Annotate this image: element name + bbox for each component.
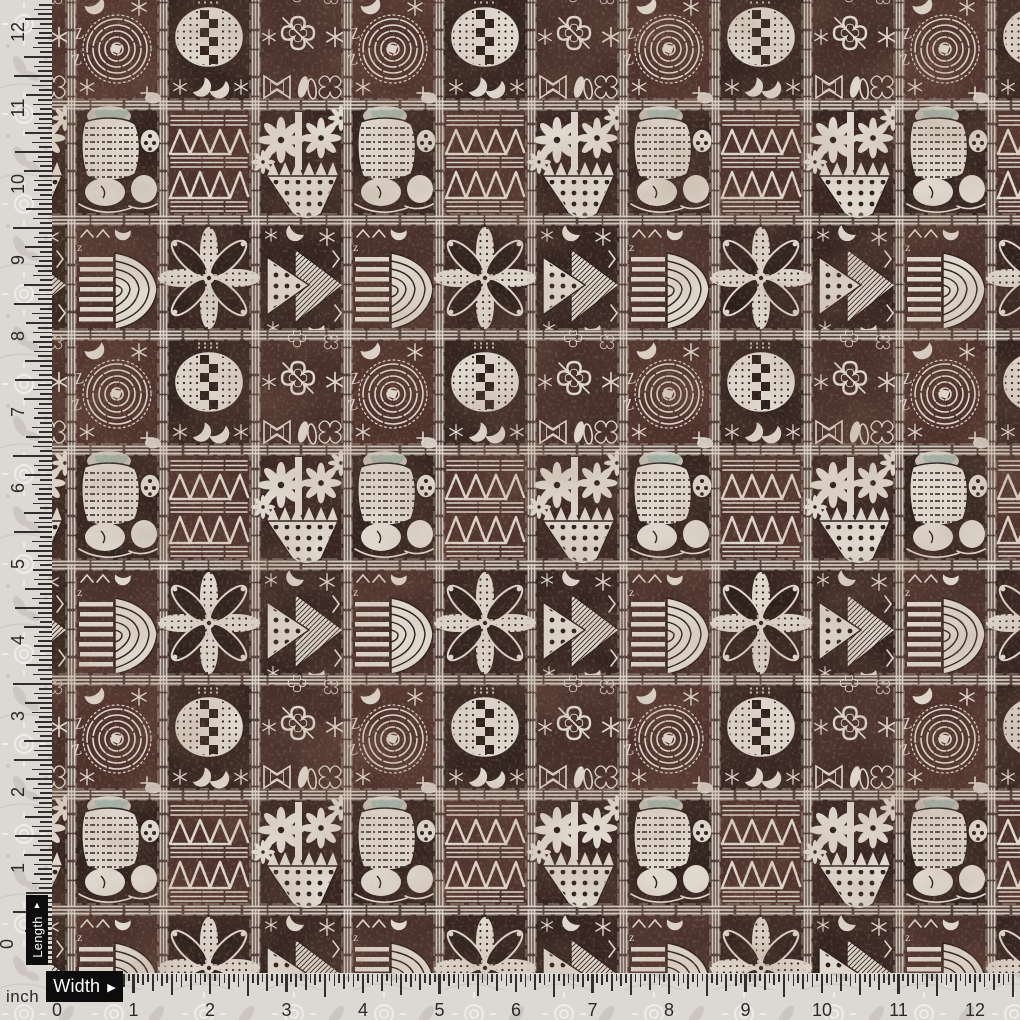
ruler-tick bbox=[372, 974, 374, 985]
ruler-tick bbox=[123, 974, 125, 987]
ruler-number: 12 bbox=[963, 1001, 987, 1019]
ruler-tick bbox=[40, 137, 52, 139]
ruler-tick bbox=[391, 974, 393, 986]
ruler-tick bbox=[34, 9, 52, 11]
ruler-tick bbox=[15, 835, 52, 837]
ruler-tick bbox=[716, 974, 718, 985]
ruler-tick bbox=[568, 974, 570, 983]
ruler-tick bbox=[34, 864, 52, 866]
ruler-tick bbox=[773, 974, 775, 985]
ruler-tick bbox=[711, 974, 713, 983]
ruler-tick bbox=[38, 270, 52, 272]
ruler-tick bbox=[38, 526, 52, 528]
ruler-tick bbox=[931, 974, 933, 981]
ruler-tick bbox=[40, 393, 52, 395]
ruler-tick bbox=[434, 974, 436, 982]
ruler-tick bbox=[874, 974, 876, 981]
ruler-tick bbox=[39, 631, 52, 633]
ruler-tick bbox=[34, 189, 52, 191]
ruler-tick bbox=[161, 974, 163, 986]
ruler-tick bbox=[38, 498, 52, 500]
ruler-number: 9 bbox=[6, 248, 30, 272]
ruler-tick bbox=[553, 974, 555, 997]
ruler-tick bbox=[310, 974, 312, 983]
ruler-tick bbox=[34, 180, 52, 182]
ruler-number: 6 bbox=[6, 476, 30, 500]
ruler-tick bbox=[965, 974, 967, 986]
ruler-tick bbox=[482, 974, 484, 983]
ruler-tick bbox=[39, 232, 52, 234]
ruler-tick bbox=[32, 655, 52, 657]
ruler-tick bbox=[26, 892, 52, 894]
ruler-tick bbox=[137, 974, 139, 983]
ruler-tick bbox=[563, 974, 565, 986]
ruler-tick bbox=[38, 42, 52, 44]
ruler-tick bbox=[247, 974, 249, 996]
ruler-tick bbox=[448, 974, 450, 986]
ruler-tick bbox=[32, 142, 52, 144]
ruler-number: 1 bbox=[6, 856, 30, 880]
ruler-tick bbox=[807, 974, 809, 982]
ruler-tick bbox=[39, 716, 52, 718]
ruler-number: 10 bbox=[6, 172, 30, 196]
ruler-tick bbox=[467, 974, 469, 987]
ruler-tick bbox=[706, 974, 708, 996]
ruler-tick bbox=[14, 303, 52, 305]
ruler-tick bbox=[33, 341, 52, 343]
ruler-tick bbox=[185, 974, 187, 981]
ruler-tick bbox=[32, 427, 52, 429]
ruler-tick bbox=[34, 693, 52, 695]
ruler-tick bbox=[238, 974, 240, 987]
ruler-number: 1 bbox=[122, 1001, 146, 1019]
ruler-tick bbox=[883, 974, 885, 983]
ruler-number: 2 bbox=[198, 1001, 222, 1019]
ruler-tick bbox=[620, 974, 622, 986]
ruler-number: 4 bbox=[351, 1001, 375, 1019]
ruler-tick bbox=[39, 745, 52, 747]
ruler-tick bbox=[38, 441, 52, 443]
ruler-tick bbox=[157, 974, 159, 981]
ruler-tick bbox=[34, 237, 52, 239]
ruler-tick bbox=[587, 974, 589, 981]
ruler-tick bbox=[40, 251, 52, 253]
ruler-tick bbox=[38, 412, 52, 414]
ruler-number: 9 bbox=[734, 1001, 758, 1019]
ruler-tick bbox=[969, 974, 971, 983]
ruler-tick bbox=[591, 974, 593, 993]
ruler-tick bbox=[40, 422, 52, 424]
ruler-tick bbox=[506, 974, 508, 986]
ruler-tick bbox=[15, 607, 52, 609]
ruler-tick bbox=[955, 974, 957, 991]
ruler-tick bbox=[40, 194, 52, 196]
ruler-tick bbox=[39, 4, 52, 6]
ruler-tick bbox=[802, 974, 804, 989]
ruler-tick bbox=[34, 636, 52, 638]
ruler-tick bbox=[649, 974, 651, 990]
ruler-tick bbox=[840, 974, 842, 991]
ruler-tick bbox=[39, 317, 52, 319]
ruler-tick bbox=[15, 151, 52, 153]
ruler-tick bbox=[34, 294, 52, 296]
ruler-tick bbox=[683, 974, 685, 983]
ruler-tick bbox=[266, 974, 268, 991]
ruler-tick bbox=[25, 816, 52, 818]
ruler-tick bbox=[888, 974, 890, 985]
ruler-tick bbox=[147, 974, 149, 982]
ruler-tick bbox=[39, 688, 52, 690]
ruler-tick bbox=[596, 974, 598, 983]
ruler-tick bbox=[40, 650, 52, 652]
ruler-tick bbox=[400, 974, 402, 995]
ruler-tick bbox=[549, 974, 551, 982]
ruler-tick bbox=[34, 465, 52, 467]
ruler-tick bbox=[38, 868, 52, 870]
ruler-tick bbox=[233, 974, 235, 982]
ruler-tick bbox=[644, 974, 646, 981]
width-label-text: Width bbox=[53, 976, 100, 997]
ruler-tick bbox=[26, 664, 52, 666]
ruler-tick bbox=[314, 974, 316, 985]
ruler-tick bbox=[32, 313, 52, 315]
ruler-number: 3 bbox=[275, 1001, 299, 1019]
ruler-tick bbox=[190, 974, 192, 990]
ruler-tick bbox=[39, 260, 52, 262]
ruler-number: 11 bbox=[6, 96, 30, 120]
ruler-tick bbox=[687, 974, 689, 989]
ruler-tick bbox=[544, 974, 546, 985]
ruler-number: 8 bbox=[657, 1001, 681, 1019]
ruler-tick bbox=[40, 792, 52, 794]
ruler-tick bbox=[941, 974, 943, 983]
fabric-listing-image: Z Z bbox=[0, 0, 1020, 1020]
ruler-tick bbox=[1003, 974, 1005, 985]
ruler-tick bbox=[616, 974, 618, 981]
ruler-tick bbox=[34, 123, 52, 125]
ruler-tick bbox=[525, 974, 527, 987]
ruler-tick bbox=[24, 284, 52, 286]
ruler-tick bbox=[907, 974, 909, 986]
ruler-tick bbox=[520, 974, 522, 982]
ruler-tick bbox=[181, 974, 183, 987]
ruler-tick bbox=[405, 974, 407, 982]
ruler-tick bbox=[38, 583, 52, 585]
ruler-tick bbox=[348, 974, 350, 982]
ruler-tick bbox=[396, 974, 398, 983]
ruler-tick bbox=[35, 493, 52, 495]
ruler-tick bbox=[640, 974, 642, 987]
length-label: ▲ Length bbox=[26, 895, 48, 965]
arrow-up-icon: ▲ bbox=[33, 900, 42, 910]
ruler-tick bbox=[40, 308, 52, 310]
ruler-tick bbox=[989, 974, 991, 981]
ruler-tick bbox=[39, 460, 52, 462]
ruler-tick bbox=[257, 974, 259, 985]
ruler-tick bbox=[39, 574, 52, 576]
ruler-tick bbox=[530, 974, 532, 981]
ruler-tick bbox=[34, 522, 52, 524]
ruler-tick bbox=[128, 974, 130, 981]
ruler-tick bbox=[34, 750, 52, 752]
ruler-tick bbox=[39, 431, 52, 433]
ruler-tick bbox=[38, 384, 52, 386]
ruler-tick bbox=[386, 974, 388, 981]
ruler-tick bbox=[33, 218, 52, 220]
ruler-tick bbox=[39, 61, 52, 63]
ruler-tick bbox=[826, 974, 828, 983]
ruler-tick bbox=[40, 678, 52, 680]
ruler-tick bbox=[40, 536, 52, 538]
ruler-tick bbox=[38, 213, 52, 215]
ruler-tick bbox=[35, 721, 52, 723]
ruler-tick bbox=[487, 974, 489, 985]
ruler-tick bbox=[285, 974, 287, 992]
ruler-tick bbox=[816, 974, 818, 981]
ruler-tick bbox=[39, 773, 52, 775]
ruler-tick bbox=[290, 974, 292, 982]
ruler-tick bbox=[40, 365, 52, 367]
ruler-tick bbox=[654, 974, 656, 983]
ruler-tick bbox=[32, 370, 52, 372]
ruler-tick bbox=[24, 740, 52, 742]
ruler-tick bbox=[334, 974, 336, 986]
ruler-tick bbox=[14, 531, 52, 533]
ruler-tick bbox=[998, 974, 1000, 983]
ruler-tick bbox=[859, 974, 861, 995]
ruler-tick bbox=[40, 878, 52, 880]
ruler-number: 5 bbox=[428, 1001, 452, 1019]
ruler-tick bbox=[13, 455, 52, 457]
ruler-tick bbox=[38, 13, 52, 15]
ruler-tick bbox=[33, 560, 52, 562]
ruler-tick bbox=[39, 374, 52, 376]
ruler-tick bbox=[39, 346, 52, 348]
ruler-tick bbox=[893, 974, 895, 982]
inch-unit-label: inch bbox=[6, 987, 39, 1007]
ruler-tick bbox=[912, 974, 914, 983]
ruler-number: 6 bbox=[504, 1001, 528, 1019]
ruler-tick bbox=[33, 731, 52, 733]
ruler-tick bbox=[25, 360, 52, 362]
ruler-tick bbox=[38, 70, 52, 72]
ruler-tick bbox=[38, 640, 52, 642]
ruler-number: 3 bbox=[6, 704, 30, 728]
ruler-tick bbox=[324, 974, 326, 997]
ruler-tick bbox=[32, 28, 52, 30]
ruler-tick bbox=[281, 974, 283, 983]
ruler-tick bbox=[35, 265, 52, 267]
ruler-tick bbox=[510, 974, 512, 983]
ruler-tick bbox=[778, 974, 780, 982]
ruler-tick bbox=[673, 974, 675, 981]
ruler-tick bbox=[415, 974, 417, 981]
bottom-inch-ruler: 0123456789101112 bbox=[0, 974, 1020, 1020]
ruler-tick bbox=[32, 484, 52, 486]
ruler-tick bbox=[262, 974, 264, 982]
ruler-tick bbox=[219, 974, 221, 986]
ruler-tick bbox=[38, 355, 52, 357]
ruler-tick bbox=[812, 974, 814, 987]
ruler-tick bbox=[38, 298, 52, 300]
ruler-number: 0 bbox=[45, 1001, 69, 1019]
ruler-tick bbox=[14, 75, 52, 77]
ruler-tick bbox=[33, 674, 52, 676]
ruler-tick bbox=[836, 974, 838, 982]
ruler-tick bbox=[38, 754, 52, 756]
ruler-tick bbox=[38, 555, 52, 557]
ruler-tick bbox=[611, 974, 613, 991]
ruler-tick bbox=[40, 80, 52, 82]
ruler-number: 7 bbox=[581, 1001, 605, 1019]
ruler-tick bbox=[24, 512, 52, 514]
ruler-tick bbox=[38, 327, 52, 329]
length-label-text: Length bbox=[11, 911, 63, 963]
ruler-tick bbox=[40, 764, 52, 766]
ruler-tick bbox=[936, 974, 938, 996]
ruler-tick bbox=[697, 974, 699, 987]
ruler-tick bbox=[13, 227, 52, 229]
ruler-tick bbox=[271, 974, 273, 981]
ruler-tick bbox=[33, 446, 52, 448]
ruler-tick bbox=[496, 974, 498, 991]
ruler-tick bbox=[601, 974, 603, 985]
ruler-tick bbox=[40, 479, 52, 481]
ruler-tick bbox=[200, 974, 202, 985]
ruler-tick bbox=[25, 132, 52, 134]
ruler-tick bbox=[39, 887, 52, 889]
ruler-tick bbox=[744, 974, 746, 992]
ruler-tick bbox=[40, 51, 52, 53]
ruler-tick bbox=[40, 564, 52, 566]
ruler-tick bbox=[39, 830, 52, 832]
ruler-tick bbox=[209, 974, 211, 994]
ruler-tick bbox=[357, 974, 359, 981]
ruler-number: 10 bbox=[810, 1001, 834, 1019]
ruler-number: 11 bbox=[887, 1001, 911, 1019]
ruler-tick bbox=[33, 275, 52, 277]
ruler-tick bbox=[34, 408, 52, 410]
ruler-tick bbox=[477, 974, 479, 996]
ruler-tick bbox=[381, 974, 383, 991]
ruler-tick bbox=[946, 974, 948, 985]
ruler-tick bbox=[606, 974, 608, 982]
ruler-tick bbox=[32, 712, 52, 714]
ruler-tick bbox=[353, 974, 355, 987]
ruler-tick bbox=[38, 184, 52, 186]
ruler-tick bbox=[721, 974, 723, 982]
ruler-tick bbox=[902, 974, 904, 981]
ruler-number: 7 bbox=[6, 400, 30, 424]
ruler-tick bbox=[34, 873, 52, 875]
ruler-tick bbox=[917, 974, 919, 989]
ruler-tick bbox=[195, 974, 197, 983]
ruler-tick bbox=[276, 974, 278, 986]
ruler-tick bbox=[26, 208, 52, 210]
ruler-tick bbox=[13, 683, 52, 685]
ruler-tick bbox=[979, 974, 981, 982]
ruler-tick bbox=[38, 811, 52, 813]
ruler-tick bbox=[850, 974, 852, 986]
ruler-tick bbox=[897, 974, 899, 994]
ruler-tick bbox=[33, 161, 52, 163]
ruler-tick bbox=[40, 593, 52, 595]
ruler-tick bbox=[582, 974, 584, 987]
ruler-tick bbox=[34, 807, 52, 809]
ruler-tick bbox=[993, 974, 995, 990]
fabric-swatch: Z Z bbox=[52, 0, 1020, 973]
ruler-tick bbox=[39, 118, 52, 120]
ruler-tick bbox=[515, 974, 517, 992]
ruler-tick bbox=[692, 974, 694, 982]
ruler-tick bbox=[377, 974, 379, 982]
ruler-tick bbox=[855, 974, 857, 983]
ruler-tick bbox=[132, 974, 134, 993]
ruler-number: 8 bbox=[6, 324, 30, 348]
ruler-tick bbox=[821, 974, 823, 993]
ruler-tick bbox=[33, 617, 52, 619]
ruler-tick bbox=[38, 726, 52, 728]
ruler-tick bbox=[702, 974, 704, 981]
ruler-tick bbox=[142, 974, 144, 985]
ruler-tick bbox=[749, 974, 751, 982]
ruler-tick bbox=[501, 974, 503, 981]
ruler-tick bbox=[33, 332, 52, 334]
ruler-tick bbox=[491, 974, 493, 982]
ruler-tick bbox=[40, 222, 52, 224]
ruler-tick bbox=[40, 849, 52, 851]
ruler-tick bbox=[40, 108, 52, 110]
ruler-tick bbox=[32, 769, 52, 771]
ruler-tick bbox=[33, 47, 52, 49]
ruler-tick bbox=[243, 974, 245, 981]
ruler-tick bbox=[152, 974, 154, 991]
ruler-tick bbox=[769, 974, 771, 983]
ruler-tick bbox=[984, 974, 986, 987]
ruler-number: 2 bbox=[6, 780, 30, 804]
ruler-tick bbox=[14, 759, 52, 761]
ruler-tick bbox=[438, 974, 440, 994]
ruler-tick bbox=[39, 802, 52, 804]
ruler-tick bbox=[39, 289, 52, 291]
ruler-tick bbox=[34, 66, 52, 68]
ruler-tick bbox=[171, 974, 173, 995]
ruler-tick bbox=[224, 974, 226, 983]
ruler-tick bbox=[38, 469, 52, 471]
ruler-tick bbox=[1012, 974, 1014, 997]
ruler-tick bbox=[926, 974, 928, 987]
ruler-tick bbox=[39, 146, 52, 148]
ruler-tick bbox=[630, 974, 632, 995]
ruler-tick bbox=[32, 598, 52, 600]
ruler-tick bbox=[24, 56, 52, 58]
ruler-tick bbox=[797, 974, 799, 983]
width-label: Width ▶ bbox=[46, 971, 123, 1002]
ruler-tick bbox=[429, 974, 431, 985]
ruler-number: 4 bbox=[6, 628, 30, 652]
ruler-tick bbox=[34, 351, 52, 353]
ruler-tick bbox=[625, 974, 627, 983]
ruler-tick bbox=[34, 417, 52, 419]
ruler-tick bbox=[33, 845, 52, 847]
ruler-tick bbox=[39, 659, 52, 661]
ruler-tick bbox=[39, 203, 52, 205]
ruler-tick bbox=[39, 403, 52, 405]
ruler-tick bbox=[38, 669, 52, 671]
ruler-tick bbox=[32, 826, 52, 828]
ruler-tick bbox=[38, 127, 52, 129]
ruler-tick bbox=[166, 974, 168, 983]
